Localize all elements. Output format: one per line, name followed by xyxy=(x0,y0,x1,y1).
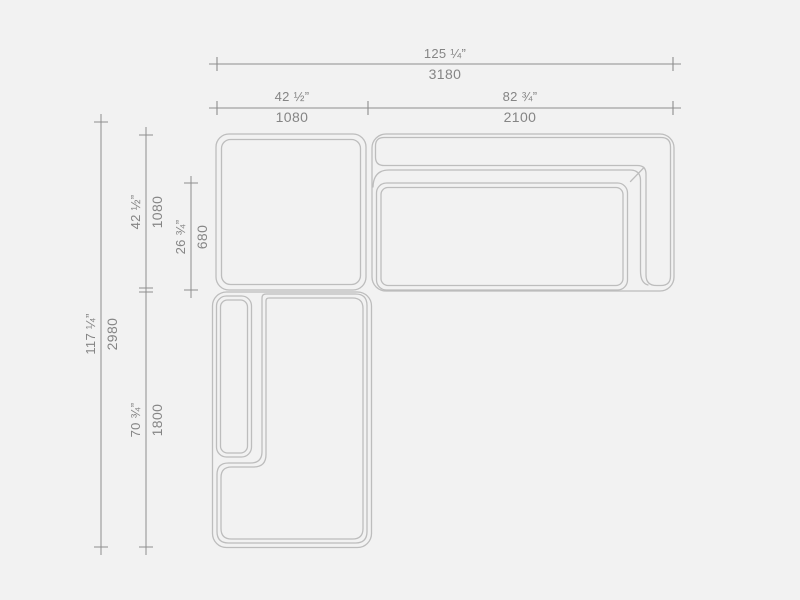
corner-module-cushion xyxy=(222,140,361,285)
dim-label-sofa-width-mm: 2100 xyxy=(504,109,537,125)
sofa-seat-cushion-inner xyxy=(381,188,623,286)
sofa-seat-cushion xyxy=(377,183,628,290)
dim-label-overall-width-mm: 3180 xyxy=(429,66,462,82)
dim-label-seat-depth-mm: 680 xyxy=(194,225,210,250)
sofa-backrest-armrest-piece xyxy=(376,138,671,286)
dim-label-corner-depth-inches: 42 ½” xyxy=(128,195,143,230)
chaise-seat-cushion-inner xyxy=(221,298,363,539)
dim-label-overall-depth-mm: 2980 xyxy=(104,318,120,351)
dim-label-corner-depth-mm: 1080 xyxy=(149,196,165,229)
dim-label-overall-depth-inches: 117 ¼” xyxy=(83,313,98,354)
dim-label-corner-width-mm: 1080 xyxy=(276,109,309,125)
corner-module-outline xyxy=(216,134,366,290)
furniture-outlines xyxy=(213,134,675,548)
dim-label-overall-width-inches: 125 ¼” xyxy=(424,46,466,61)
dimension-labels: 125 ¼” 3180 42 ½” 1080 82 ¾” 2100 117 ¼”… xyxy=(83,46,537,437)
dim-label-sofa-width-inches: 82 ¾” xyxy=(503,89,538,104)
dim-label-corner-width-inches: 42 ½” xyxy=(275,89,310,104)
dimension-lines xyxy=(94,57,681,555)
chaise-module-outline xyxy=(213,292,372,548)
chaise-seat-cushion xyxy=(217,294,367,543)
chaise-armrest xyxy=(217,296,252,457)
drawing-canvas: 125 ¼” 3180 42 ½” 1080 82 ¾” 2100 117 ¼”… xyxy=(0,0,800,600)
dim-label-seat-depth-inches: 26 ¾” xyxy=(173,220,188,255)
dim-label-chaise-length-mm: 1800 xyxy=(149,404,165,437)
sofa-module-outline xyxy=(372,134,674,291)
chaise-armrest-inner xyxy=(221,300,248,453)
dim-label-chaise-length-inches: 70 ¾” xyxy=(128,403,143,438)
sofa-dimension-diagram: 125 ¼” 3180 42 ½” 1080 82 ¾” 2100 117 ¼”… xyxy=(0,0,800,600)
